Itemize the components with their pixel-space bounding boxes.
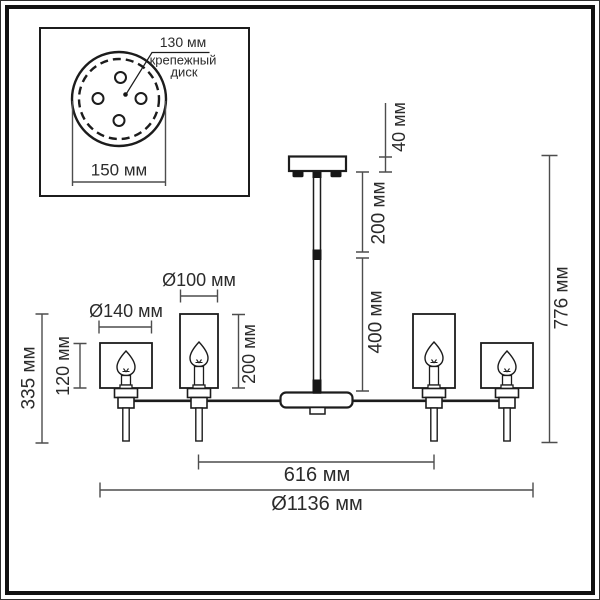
dim-upper-rod-label: 200 мм bbox=[370, 181, 389, 244]
lamp-4-socket-collar bbox=[496, 389, 519, 398]
inset-bolt-circle-dim-label: 130 мм bbox=[160, 35, 207, 49]
dim-inner-span-label: 616 мм bbox=[284, 465, 350, 485]
lamp-1-candle-tube bbox=[122, 376, 131, 386]
chandelier-drawing bbox=[100, 157, 533, 442]
mount-hole-left bbox=[93, 93, 104, 104]
dim-small-shade-diameter-label: Ø100 мм bbox=[162, 271, 236, 289]
dim-lamp-drop-label: 335 мм bbox=[20, 346, 39, 409]
dim-lower-rod-label: 400 мм bbox=[367, 290, 386, 353]
lamp-4-candle-tube bbox=[503, 376, 512, 386]
lamp-1-socket-collar bbox=[115, 389, 138, 398]
dim-canopy-height-label: 40 мм bbox=[390, 102, 408, 152]
lamp-4 bbox=[481, 343, 533, 441]
inset-disk-label-line2: диск bbox=[170, 66, 197, 79]
lamp-3 bbox=[413, 314, 455, 441]
lamp-1-stem bbox=[123, 408, 129, 441]
technical-drawing-canvas: 130 мм крепежный диск 150 мм 40 мм 200 м… bbox=[0, 0, 600, 600]
lamp-2-socket-collar bbox=[188, 389, 211, 398]
dim-large-shade-height-label: 120 мм bbox=[54, 336, 72, 396]
lamp-3-stem bbox=[431, 408, 437, 441]
lamp-2 bbox=[180, 314, 218, 441]
ceiling-plate-foot-left bbox=[293, 171, 304, 177]
lamp-2-candle-tube bbox=[195, 367, 204, 386]
mount-hole-right bbox=[136, 93, 147, 104]
dim-large-shade-height-line bbox=[74, 344, 87, 389]
lamp-3-candle-tube bbox=[430, 367, 439, 386]
dim-overall-diameter-label: Ø1136 мм bbox=[271, 494, 363, 514]
hanging-rod bbox=[314, 171, 321, 393]
rod-bottom-connector bbox=[313, 380, 322, 394]
dim-total-height-label: 776 мм bbox=[553, 266, 572, 329]
inset-disk-diameter-label: 150 мм bbox=[91, 162, 147, 179]
lamp-4-socket-block bbox=[499, 398, 515, 409]
dim-large-shade-diameter-label: Ø140 мм bbox=[89, 302, 163, 320]
ceiling-plate bbox=[289, 157, 346, 172]
lamp-3-socket-collar bbox=[423, 389, 446, 398]
mount-hole-bottom bbox=[114, 115, 125, 126]
hub-bottom-tab bbox=[310, 408, 325, 415]
ceiling-plate-foot-right bbox=[331, 171, 342, 177]
dim-upper-rod-line bbox=[356, 172, 369, 252]
rod-middle-connector bbox=[313, 250, 322, 261]
dim-small-shade-diameter-line bbox=[181, 290, 218, 303]
lamp-1 bbox=[100, 343, 152, 441]
mount-hole-top bbox=[115, 72, 126, 83]
lamp-3-socket-block bbox=[426, 398, 442, 409]
central-hub bbox=[281, 393, 353, 408]
lamp-4-stem bbox=[504, 408, 510, 441]
lamp-2-socket-block bbox=[191, 398, 207, 409]
lamp-2-stem bbox=[196, 408, 202, 441]
lamp-1-socket-block bbox=[118, 398, 134, 409]
dim-small-shade-height-label: 200 мм bbox=[240, 324, 258, 384]
dim-large-shade-diameter-line bbox=[99, 321, 152, 334]
